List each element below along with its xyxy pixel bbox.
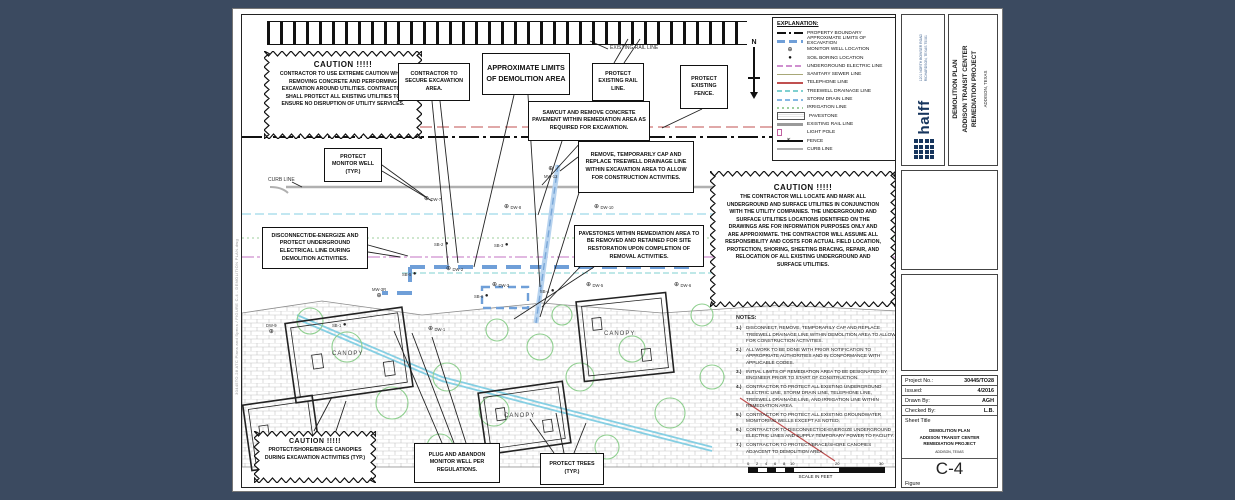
north-arrow-cross — [748, 77, 760, 79]
project-number-row: Project No.:30445/TO28 — [902, 376, 997, 386]
sheet-title-label: Sheet Title — [902, 416, 997, 425]
existing-rail-track — [267, 21, 747, 45]
well-marker: SB-3● — [494, 243, 508, 248]
north-label: N — [747, 39, 761, 46]
caution-body: THE CONTRACTOR WILL LOCATE AND MARK ALL … — [724, 194, 882, 269]
project-title-line: REMEDIATION PROJECT — [970, 15, 980, 163]
legend-row: PAVESTONE — [777, 112, 891, 120]
irrigation-line-symbol — [777, 105, 803, 111]
legend-row: STORM DRAIN LINE — [777, 95, 891, 103]
callout-protect-fence: PROTECT EXISTING FENCE. — [680, 65, 728, 109]
treewell-drainage-symbol — [777, 88, 803, 94]
rail-line-symbol — [777, 121, 803, 127]
fence-symbol — [777, 138, 803, 144]
callout-secure-excavation: CONTRACTOR TO SECURE EXCAVATION AREA. — [398, 63, 470, 101]
north-arrow: N — [747, 39, 761, 111]
note-item: 7.)CONTRACTOR TO PROTECT/BRACE/SHORE CAN… — [736, 442, 896, 455]
well-marker: ⊕DW-1 — [428, 327, 445, 332]
drawn-by-row: Drawn By:AGH — [902, 396, 997, 406]
note-item: 4.)CONTRACTOR TO PROTECT ALL EXISTING UN… — [736, 384, 896, 409]
excavation-limits-symbol — [777, 38, 803, 44]
callout-protect-rail: PROTECT EXISTING RAIL LINE. — [592, 63, 644, 101]
project-title-line: ADDISON TRANSIT CENTER — [961, 15, 971, 163]
well-marker: ⊕DW-5 — [586, 283, 603, 288]
legend-row: FENCE — [777, 137, 891, 145]
caution-title: CAUTION !!!!! — [264, 438, 366, 445]
scale-caption: SCALE IN FEET — [748, 474, 883, 479]
note-item: 5.)CONTRACTOR TO PROTECT ALL EXISTING GR… — [736, 412, 896, 425]
callout-sawcut: SAWCUT AND REMOVE CONCRETE PAVEMENT WITH… — [528, 101, 650, 141]
north-arrow-shaft — [753, 47, 755, 97]
legend-row: CURB LINE — [777, 145, 891, 153]
well-marker: SB-4● — [540, 289, 554, 294]
monitor-well-symbol: ⊕ — [777, 47, 803, 53]
legend-row: ●SOIL BORING LOCATION — [777, 54, 891, 62]
notes-block: NOTES: 1.)DISCONNECT, REMOVE, TEMPORARIL… — [736, 315, 896, 457]
light-pole-symbol — [777, 130, 803, 136]
well-marker: MW-3R⊕ — [372, 287, 386, 299]
legend-row: UNDERGROUND ELECTRIC LINE — [777, 62, 891, 70]
note-item: 3.)INITIAL LIMITS OF REMEDIATION AREA TO… — [736, 369, 896, 382]
project-location: ADDISON, TEXAS — [983, 15, 988, 163]
legend-row: SANITARY SEWER LINE — [777, 70, 891, 78]
caution-body: PROTECT/SHORE/BRACE CANOPIES DURING EXCA… — [264, 447, 366, 462]
scale-numbers: 0 2 4 6 8 10 20 30 — [748, 461, 892, 466]
well-marker: ⊕MW-12 — [544, 167, 557, 179]
note-item: 1.)DISCONNECT, REMOVE, TEMPORARILY CAP A… — [736, 325, 896, 344]
callout-plug-abandon: PLUG AND ABANDON MONITOR WELL PER REGULA… — [414, 443, 500, 483]
sanitary-sewer-symbol — [777, 72, 803, 78]
callout-disconnect-electric: DISCONNECT/DE-ENERGIZE AND PROTECT UNDER… — [262, 227, 368, 269]
telephone-line-symbol — [777, 80, 803, 86]
plan-drawing-area: EXISTING RAIL LINE CURB LINE N EXPLANATI… — [241, 14, 896, 488]
figure-label: Figure — [905, 481, 997, 487]
well-marker: SB-2● — [434, 242, 448, 247]
legend-row: TREEWELL DRAINAGE LINE — [777, 87, 891, 95]
legend-row: APPROXIMATE LIMITS OF EXCAVATION — [777, 37, 891, 45]
well-marker: SB-1● — [332, 323, 346, 328]
callout-treewell: REMOVE, TEMPORARILY CAP AND REPLACE TREE… — [578, 141, 694, 193]
canopy-label: CANOPY — [332, 351, 363, 357]
project-info-box: Project No.:30445/TO28 Issued:4/2016 Dra… — [901, 375, 998, 488]
note-item: 6.)CONTRACTOR TO DISCONNECT/DE-ENERGIZE … — [736, 427, 896, 440]
halff-grid-icon — [914, 139, 934, 159]
caution-box-bottom-left: CAUTION !!!!! PROTECT/SHORE/BRACE CANOPI… — [254, 431, 376, 483]
well-marker: ⊕DW-3 — [492, 283, 509, 288]
project-title-line: DEMOLITION PLAN — [951, 15, 961, 163]
halff-logo-box: halff 1201 NORTH BOWSER ROAD RICHARDSON,… — [901, 14, 945, 166]
well-marker: ⊕DW-7 — [424, 197, 441, 202]
curb-line-label: CURB LINE — [268, 177, 295, 183]
caution-title: CAUTION !!!!! — [276, 60, 410, 69]
scale-segments — [748, 467, 885, 473]
issued-row: Issued:4/2016 — [902, 386, 997, 396]
legend-row: TELEPHONE LINE — [777, 79, 891, 87]
electric-line-symbol — [777, 63, 803, 69]
canopy-label: CANOPY — [504, 413, 535, 419]
legend-row: EXISTING RAIL LINE — [777, 120, 891, 128]
caution-body: CONTRACTOR TO USE EXTREME CAUTION WHEN R… — [276, 71, 410, 109]
legend-row: ⊕MONITOR WELL LOCATION — [777, 46, 891, 54]
well-marker: ⊕DW-2 — [446, 267, 463, 272]
soil-boring-symbol: ● — [777, 55, 803, 61]
checked-by-row: Checked By:L.B. — [902, 406, 997, 416]
company-address: 1201 NORTH BOWSER ROAD RICHARDSON, TEXAS… — [919, 34, 929, 81]
property-boundary-symbol — [777, 30, 803, 36]
drawing-sheet: 30445TO.28 ATC Plans and Specs / FIGURE … — [232, 8, 1003, 492]
sheet-number: C-4 — [902, 458, 997, 479]
storm-drain-symbol — [777, 97, 803, 103]
note-item: 2.)ALL WORK TO BE DONE WITH PRIOR NOTIFI… — [736, 347, 896, 366]
callout-pavestones: PAVESTONES WITHIN REMEDIATION AREA TO BE… — [574, 225, 704, 267]
notes-title: NOTES: — [736, 315, 896, 322]
callout-protect-monitor-well: PROTECT MONITOR WELL (TYP.) — [324, 148, 382, 182]
pavestone-symbol — [777, 112, 805, 120]
caution-box-right: CAUTION !!!!! THE CONTRACTOR WILL LOCATE… — [710, 171, 896, 307]
well-marker: ⊕DW-6 — [674, 283, 691, 288]
legend-row: IRRIGATION LINE — [777, 104, 891, 112]
callout-protect-trees: PROTECT TREES (TYP.) — [540, 453, 604, 485]
title-block: halff 1201 NORTH BOWSER ROAD RICHARDSON,… — [901, 14, 998, 488]
legend-title: EXPLANATION: — [777, 21, 891, 27]
company-name: halff — [916, 100, 933, 134]
well-marker: ⊕DW-8 — [504, 205, 521, 210]
existing-rail-line-label: EXISTING RAIL LINE — [610, 45, 658, 51]
callout-demolition-limits: APPROXIMATE LIMITS OF DEMOLITION AREA — [482, 53, 570, 95]
scale-bar: 0 2 4 6 8 10 20 30 SCALE IN FEET — [748, 461, 892, 481]
well-marker: ⊕DW-10 — [594, 205, 613, 210]
file-path-text: 30445TO.28 ATC Plans and Specs / FIGURE … — [234, 239, 239, 395]
empty-title-box — [901, 274, 998, 371]
well-marker: SB-6● — [474, 294, 488, 299]
screenshot-canvas: 30445TO.28 ATC Plans and Specs / FIGURE … — [0, 0, 1235, 500]
well-marker: SB-5● — [402, 272, 416, 277]
canopy-label: CANOPY — [604, 331, 635, 337]
caution-title: CAUTION !!!!! — [724, 183, 882, 192]
project-title-box: DEMOLITION PLAN ADDISON TRANSIT CENTER R… — [948, 14, 998, 166]
curb-line-symbol — [777, 146, 803, 152]
explanation-legend: EXPLANATION: PROPERTY BOUNDARY APPROXIMA… — [772, 17, 896, 161]
empty-title-box — [901, 170, 998, 270]
well-marker: DW-9⊕ — [266, 323, 277, 335]
legend-row: LIGHT POLE — [777, 129, 891, 137]
